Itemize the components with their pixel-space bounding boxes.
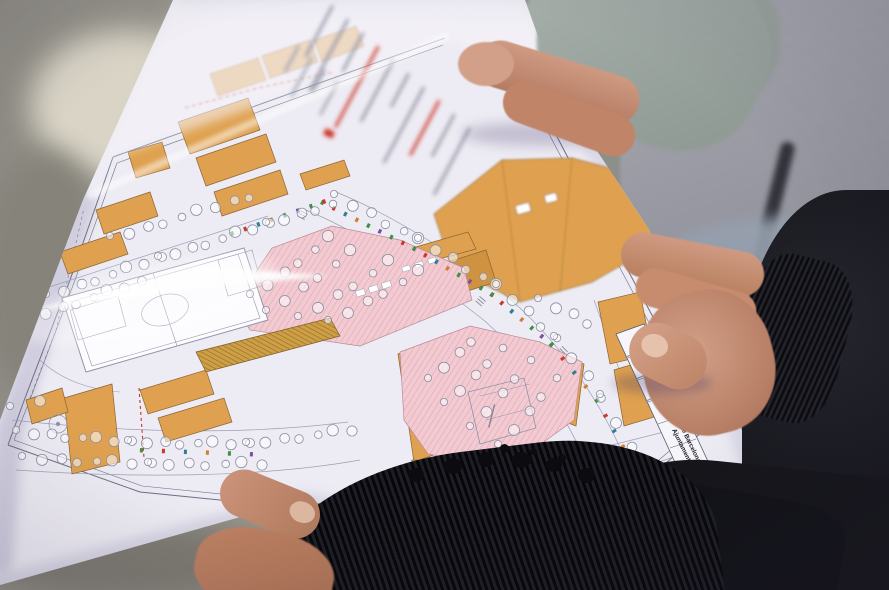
tree-symbol — [257, 460, 267, 470]
tree-symbol — [210, 202, 220, 212]
tree-symbol — [439, 362, 450, 373]
tree-symbol — [481, 407, 492, 418]
tree-symbol — [262, 306, 269, 313]
tree-symbol — [382, 254, 393, 265]
tree-symbol — [509, 425, 520, 436]
tree-symbol — [175, 441, 184, 450]
tree-symbol — [399, 278, 407, 286]
tree-symbol — [566, 353, 577, 364]
tree-symbol — [124, 436, 131, 443]
tree-symbol — [379, 290, 388, 299]
tree-symbol — [262, 218, 269, 225]
tree-symbol — [400, 227, 408, 235]
tree-symbol — [536, 323, 545, 332]
tree-symbol — [207, 436, 218, 447]
tree-symbol — [109, 437, 119, 447]
tree-symbol — [329, 200, 337, 208]
tree-symbol — [455, 386, 466, 397]
tree-symbol — [424, 374, 431, 381]
knit-tuft — [558, 454, 566, 462]
tree-symbol — [492, 280, 499, 287]
tree-symbol — [510, 375, 519, 384]
planting-marker — [228, 451, 231, 456]
tree-symbol — [467, 338, 476, 347]
tree-symbol — [499, 344, 507, 352]
knit-tuft — [530, 448, 537, 455]
tree-symbol — [611, 418, 622, 429]
tree-symbol — [127, 459, 137, 469]
tree-symbol — [430, 245, 441, 256]
tree-symbol — [367, 208, 377, 218]
tree-symbol — [455, 347, 465, 357]
tree-symbol — [551, 303, 562, 314]
tree-symbol — [440, 398, 447, 405]
tree-symbol — [596, 390, 603, 397]
planting-marker — [184, 450, 187, 455]
knit-tuft — [500, 444, 509, 453]
tree-symbol — [294, 259, 303, 268]
tree-symbol — [466, 422, 473, 429]
tree-symbol — [230, 196, 239, 205]
tree-symbol — [37, 454, 48, 465]
tree-symbol — [322, 230, 333, 241]
tree-symbol — [93, 458, 101, 466]
tree-symbol — [35, 396, 46, 407]
tree-symbol — [188, 242, 198, 252]
tree-symbol — [144, 222, 154, 232]
tree-symbol — [57, 454, 67, 464]
tree-symbol — [327, 425, 338, 436]
tree-symbol — [332, 260, 340, 268]
tree-symbol — [315, 431, 323, 439]
tree-symbol — [144, 458, 151, 465]
planting-marker — [162, 449, 165, 454]
photo-hands-holding-urban-plan: PG DE LA ZONA FRANCA — [0, 0, 889, 590]
tree-symbol — [483, 360, 492, 369]
tree-symbol — [279, 215, 290, 226]
thumb-nail — [286, 498, 318, 527]
tree-symbol — [195, 439, 203, 447]
tree-symbol — [312, 246, 320, 254]
frayed-knit-edge — [444, 458, 462, 474]
tree-symbol — [245, 194, 253, 202]
tree-symbol — [297, 208, 307, 218]
tree-symbol — [414, 234, 421, 241]
tree-symbol — [462, 265, 471, 274]
tree-symbol — [18, 452, 25, 459]
tree-symbol — [363, 296, 373, 306]
tree-symbol — [222, 460, 230, 468]
tree-symbol — [299, 282, 309, 292]
tree-symbol — [550, 332, 557, 339]
tree-symbol — [347, 426, 357, 436]
tree-symbol — [295, 435, 304, 444]
top-hand-fingertip — [458, 42, 514, 86]
tree-symbol — [184, 458, 194, 468]
tree-symbol — [553, 374, 561, 382]
tree-symbol — [248, 225, 258, 235]
tree-symbol — [311, 207, 320, 216]
tree-symbol — [124, 228, 135, 239]
planting-marker — [140, 448, 143, 453]
tree-symbol — [12, 426, 19, 433]
frayed-knit-edge — [512, 452, 531, 468]
tree-symbol — [260, 437, 271, 448]
tree-symbol — [294, 312, 301, 319]
tree-symbol — [525, 406, 535, 416]
tree-symbol — [154, 252, 161, 259]
tree-symbol — [324, 316, 331, 323]
tree-symbol — [236, 456, 247, 467]
tree-symbol — [163, 460, 174, 471]
tree-symbol — [229, 226, 240, 237]
tree-symbol — [242, 438, 249, 445]
tree-symbol — [330, 190, 337, 197]
tree-symbol — [534, 294, 541, 301]
tree-symbol — [584, 371, 594, 381]
tree-symbol — [313, 302, 324, 313]
tree-symbol — [369, 269, 377, 277]
tree-symbol — [178, 213, 186, 221]
tree-symbol — [226, 440, 236, 450]
tree-symbol — [141, 438, 152, 449]
tree-symbol — [90, 431, 101, 442]
tree-symbol — [159, 220, 168, 229]
tree-symbol — [412, 264, 423, 275]
tree-symbol — [6, 402, 13, 409]
frayed-knit-edge — [408, 468, 424, 482]
tree-symbol — [73, 458, 82, 467]
tree-symbol — [537, 393, 546, 402]
frayed-knit-edge — [478, 452, 494, 467]
tree-symbol — [498, 388, 508, 398]
tree-symbol — [507, 295, 518, 306]
planting-marker — [206, 450, 209, 455]
tree-symbol — [527, 356, 535, 364]
frayed-knit-edge — [578, 468, 595, 483]
tree-symbol — [47, 429, 57, 439]
tree-symbol — [347, 200, 358, 211]
tree-symbol — [201, 462, 210, 471]
tree-symbol — [344, 244, 355, 255]
tree-symbol — [381, 220, 390, 229]
tree-symbol — [280, 433, 290, 443]
tree-symbol — [279, 296, 290, 307]
tree-symbol — [343, 308, 354, 319]
tree-symbol — [219, 235, 227, 243]
tree-symbol — [161, 437, 171, 447]
thumb-nail — [638, 331, 671, 361]
tree-symbol — [471, 370, 481, 380]
tree-symbol — [569, 309, 579, 319]
tree-symbol — [448, 253, 458, 263]
tree-symbol — [191, 204, 202, 215]
tree-symbol — [79, 434, 87, 442]
planting-marker — [250, 452, 253, 457]
tree-symbol — [201, 241, 210, 250]
tree-symbol — [106, 455, 117, 466]
tree-symbol — [333, 290, 343, 300]
tree-symbol — [61, 434, 70, 443]
tree-symbol — [524, 306, 534, 316]
tree-symbol — [24, 312, 31, 319]
tree-symbol — [106, 232, 113, 239]
tree-symbol — [42, 290, 49, 297]
tree-symbol — [583, 320, 592, 329]
tree-symbol — [29, 429, 40, 440]
tree-symbol — [349, 282, 358, 291]
tree-symbol — [480, 273, 488, 281]
